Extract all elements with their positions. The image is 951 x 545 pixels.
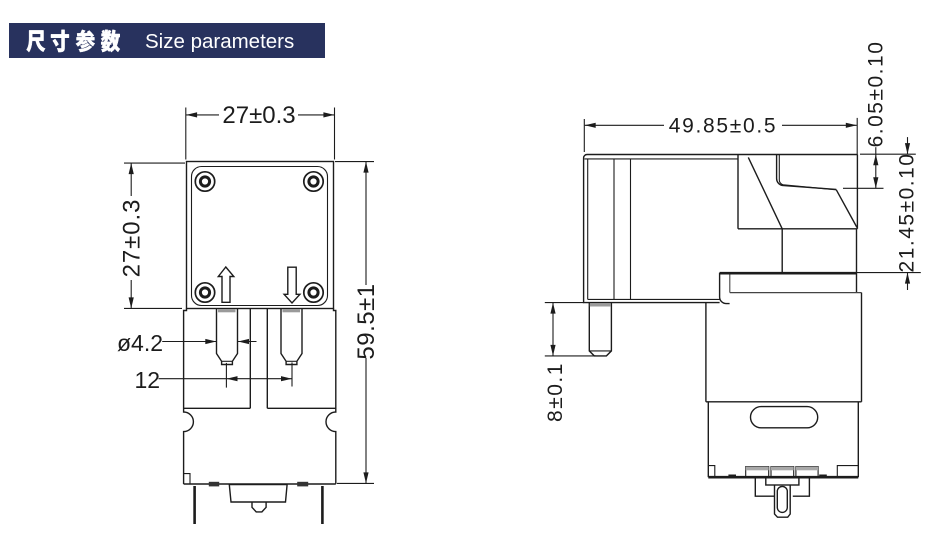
svg-text:59.5±1: 59.5±1: [353, 283, 380, 359]
svg-text:27±0.3: 27±0.3: [119, 199, 146, 278]
svg-text:ø4.2: ø4.2: [117, 330, 163, 356]
svg-text:8±0.1: 8±0.1: [544, 362, 567, 422]
svg-text:49.85±0.5: 49.85±0.5: [669, 115, 778, 138]
svg-text:6.05±0.10: 6.05±0.10: [865, 41, 888, 148]
svg-text:21.45±0.10: 21.45±0.10: [896, 153, 919, 273]
svg-text:27±0.3: 27±0.3: [222, 102, 295, 129]
svg-text:12: 12: [135, 367, 161, 393]
